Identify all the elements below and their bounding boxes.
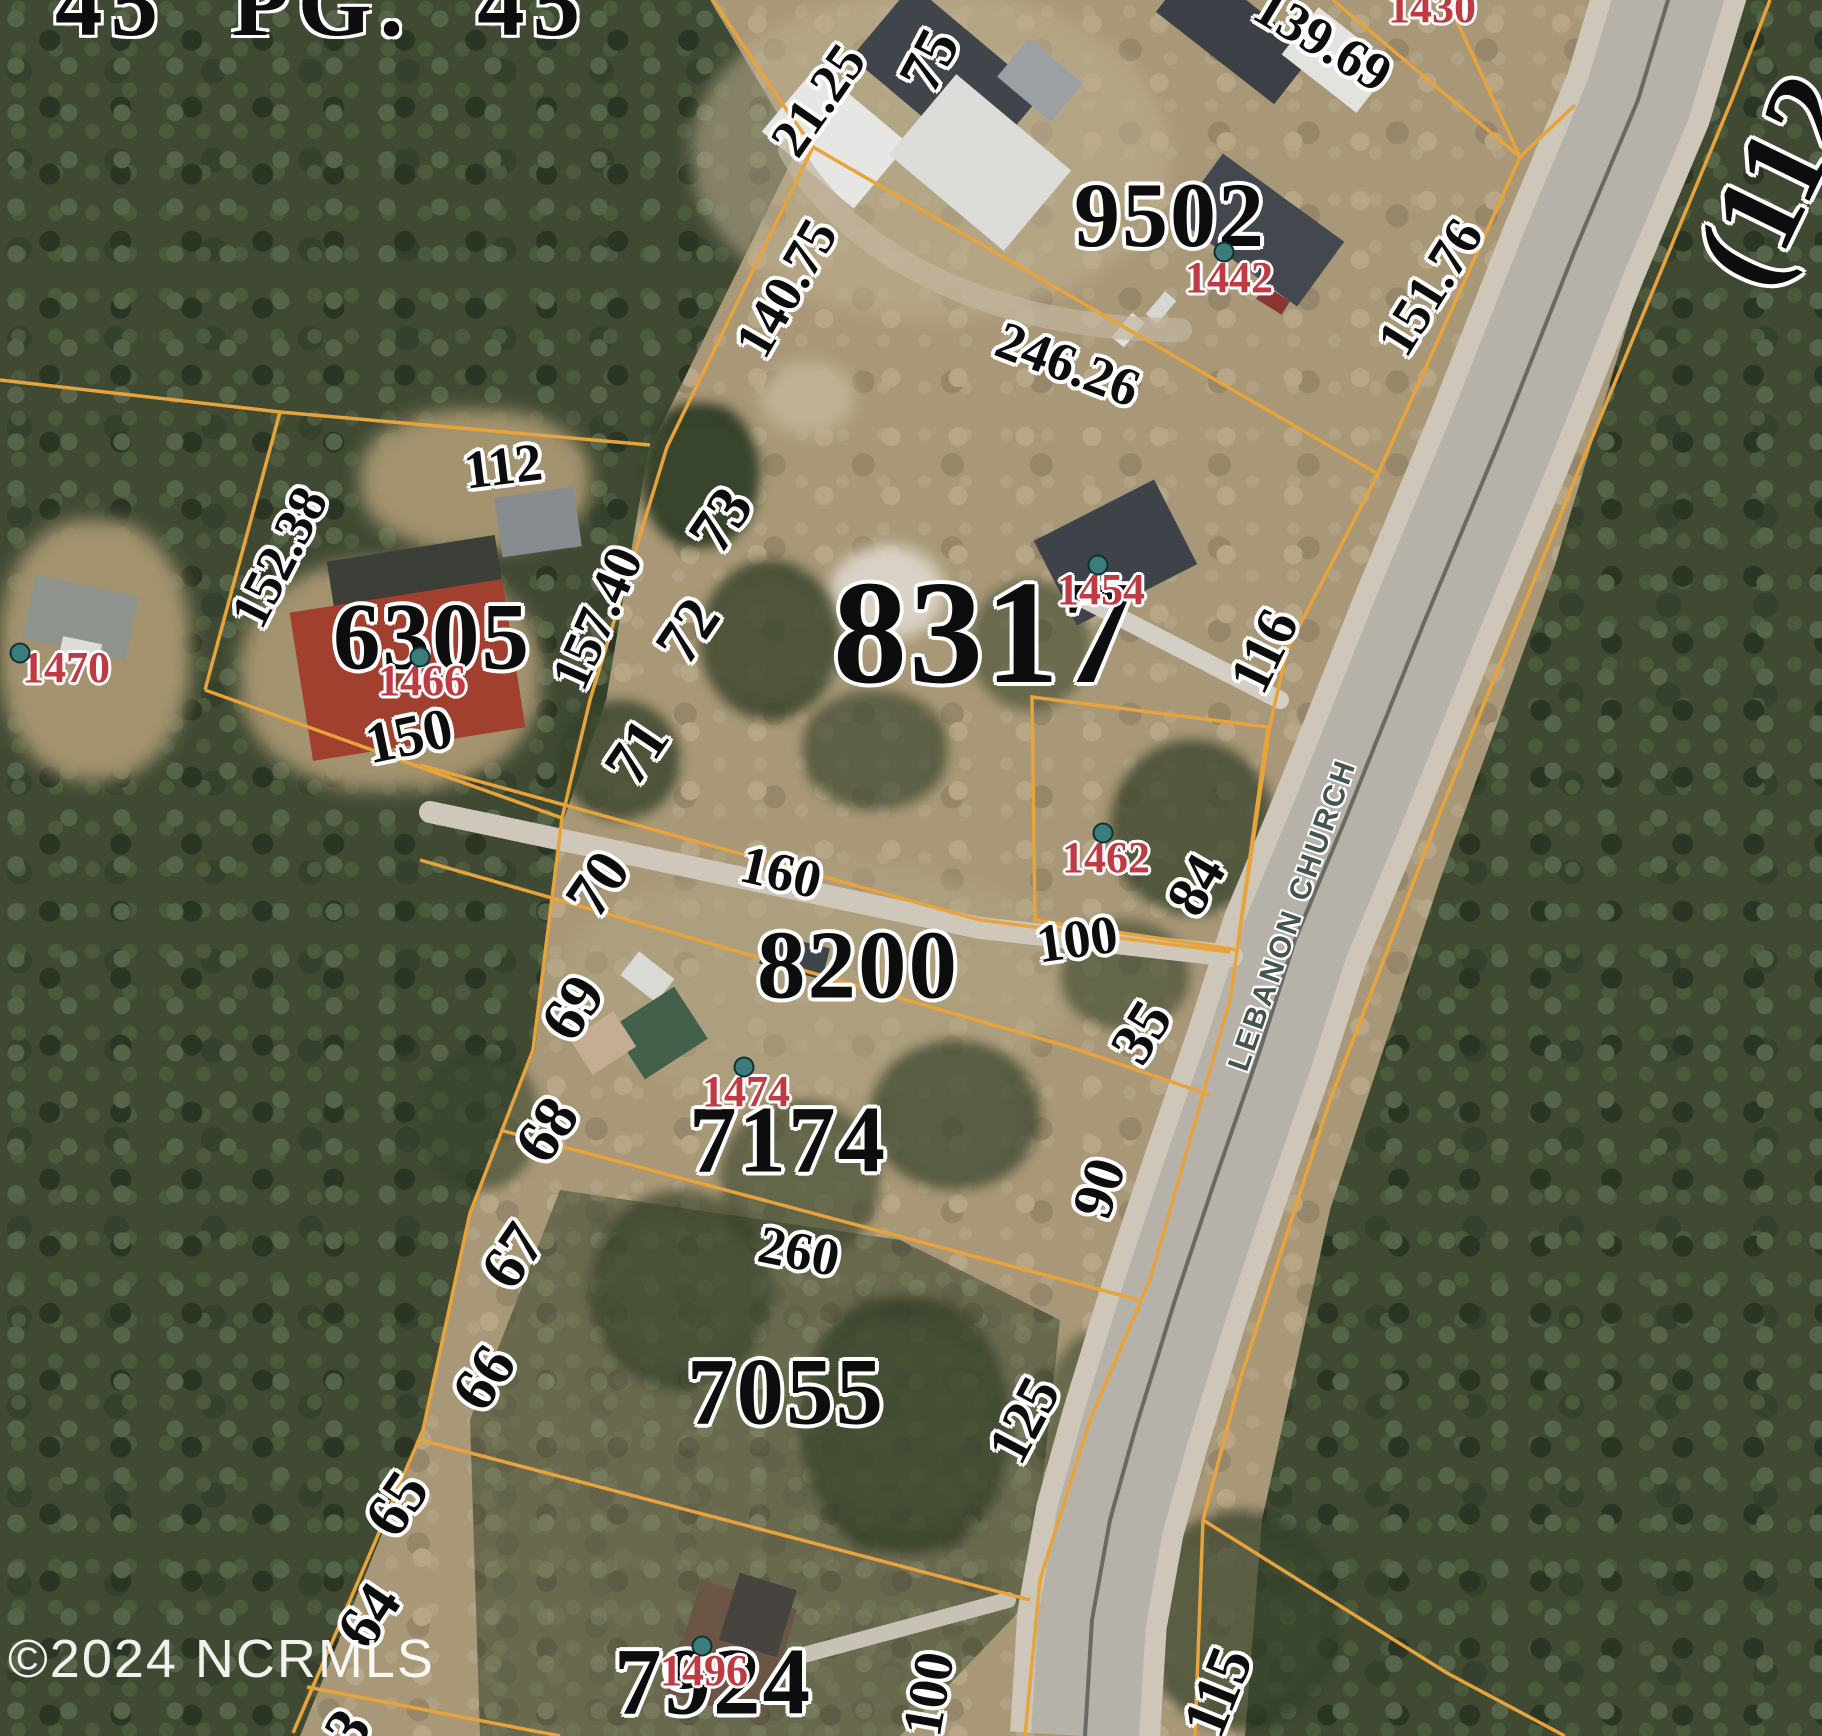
map-overlay-graphics <box>0 0 1822 1736</box>
parcel-map-canvas[interactable]: 45 PG. 45 (112 9502 6305 8317 8200 7174 … <box>0 0 1822 1736</box>
watermark: ©2024 NCRMLS <box>8 1628 435 1690</box>
parcel-point-dot <box>410 647 431 668</box>
parcel-point-dot <box>734 1057 755 1078</box>
parcel-number-label: 9502 <box>1074 169 1266 261</box>
parcel-number-label: 8200 <box>757 917 959 1014</box>
parcel-point-dot <box>1093 823 1114 844</box>
parcel-number-label: 7055 <box>687 1345 885 1440</box>
deed-reference-partial: 45 PG. 45 <box>55 0 588 58</box>
parcel-point-dot <box>10 643 31 664</box>
parcel-point-dot <box>1214 242 1235 263</box>
parcel-point-dot <box>1088 555 1109 576</box>
street-number-label: 1470 <box>22 646 110 690</box>
dimension-label: 100 <box>894 1648 964 1736</box>
dimension-label: 112 <box>461 434 545 497</box>
street-number-label: 1442 <box>1185 256 1273 300</box>
dimension-label: 100 <box>1033 907 1121 972</box>
street-number-label: 1430 <box>1388 0 1476 30</box>
parcel-point-dot <box>692 1636 713 1657</box>
dimension-label: 260 <box>754 1217 844 1285</box>
